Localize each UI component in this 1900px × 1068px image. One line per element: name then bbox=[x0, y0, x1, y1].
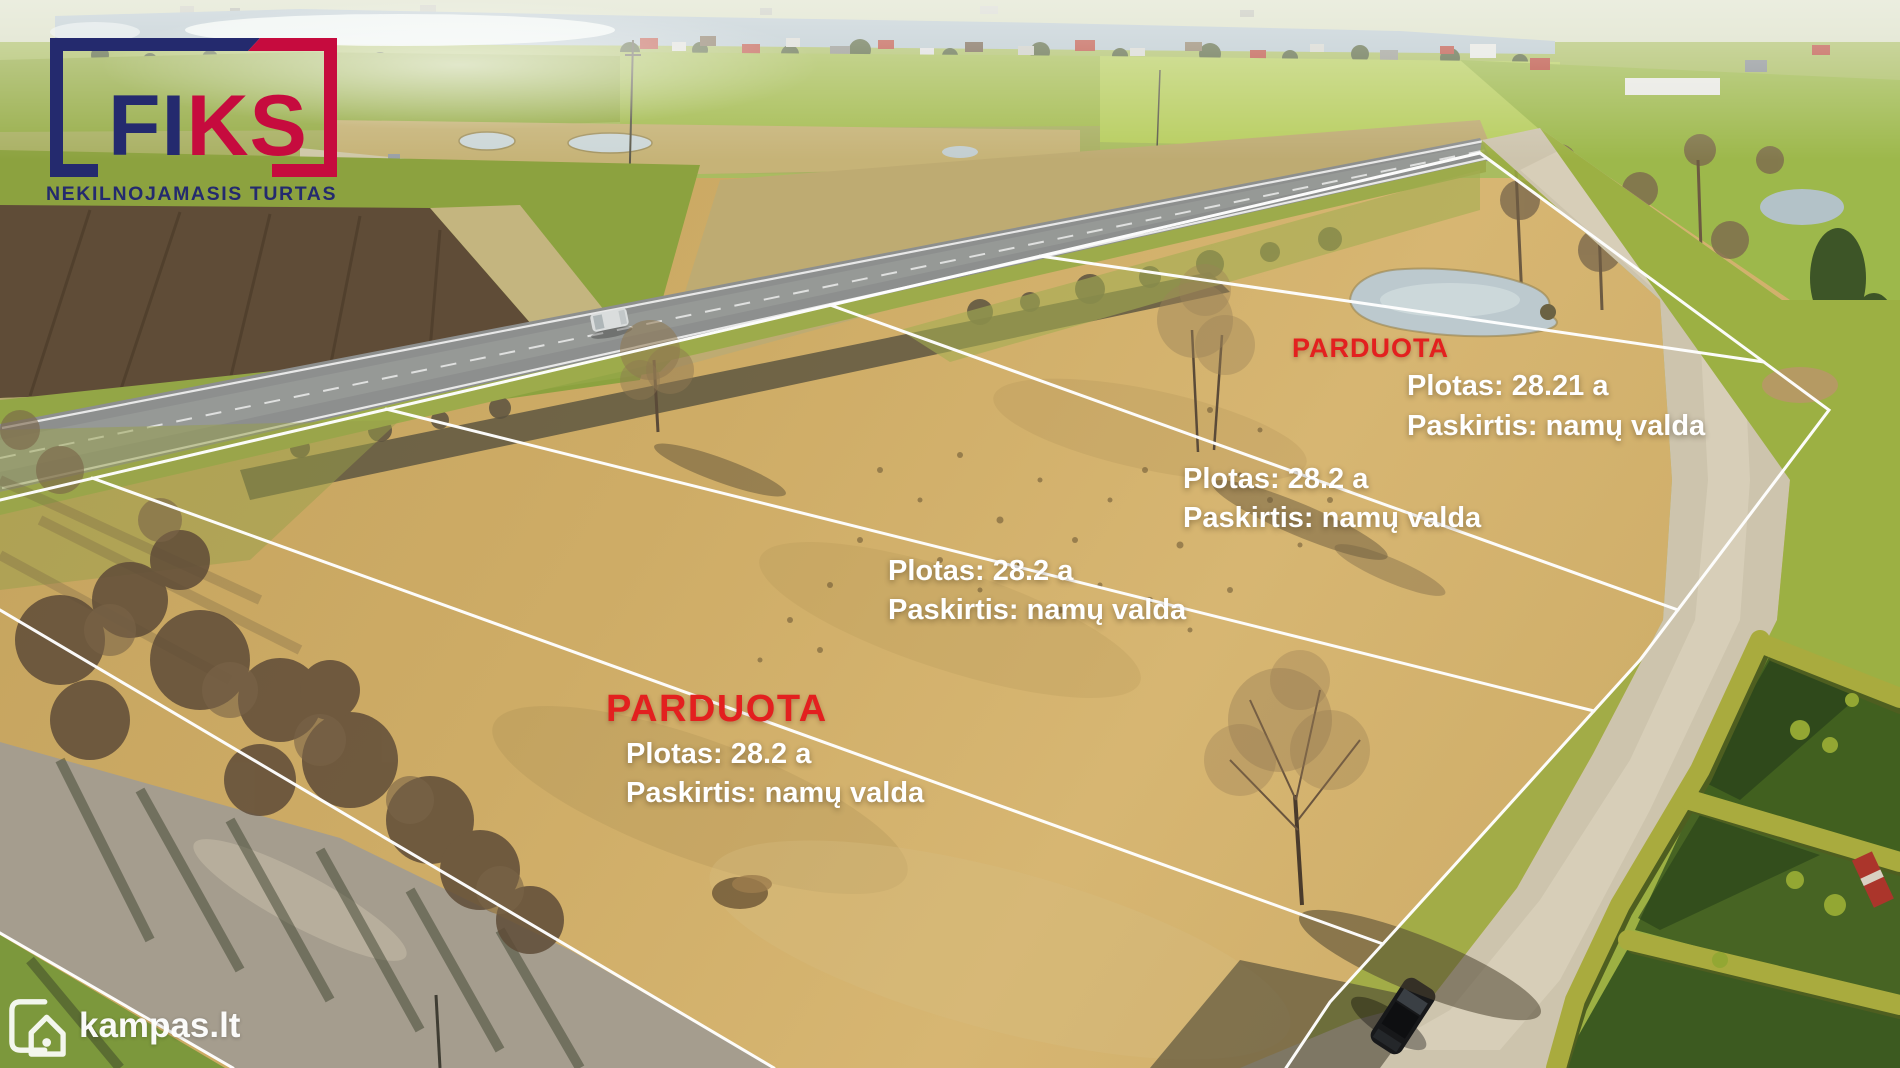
plot-area-text: Plotas: 28.2 a bbox=[626, 739, 924, 769]
plot-label-4: PARDUOTA Plotas: 28.2 a Paskirtis: namų … bbox=[606, 690, 924, 809]
brush-pile bbox=[1762, 367, 1838, 403]
plot-purpose-text: Paskirtis: namų valda bbox=[1183, 503, 1481, 533]
sold-badge: PARDUOTA bbox=[1292, 334, 1705, 362]
plot-label-3: Plotas: 28.2 a Paskirtis: namų valda bbox=[888, 547, 1186, 626]
kampas-watermark: kampas.lt bbox=[8, 994, 240, 1058]
kampas-house-icon bbox=[8, 994, 66, 1058]
plot-label-1: PARDUOTA Plotas: 28.21 a Paskirtis: namų… bbox=[1292, 334, 1705, 441]
plot-area-text: Plotas: 28.2 a bbox=[1183, 464, 1481, 494]
plot-purpose-text: Paskirtis: namų valda bbox=[1407, 411, 1705, 441]
pond-northeast bbox=[1760, 189, 1844, 225]
plot-purpose-text: Paskirtis: namų valda bbox=[888, 595, 1186, 625]
plot-label-2: Plotas: 28.2 a Paskirtis: namų valda bbox=[1183, 455, 1481, 534]
fiks-logo: FIKS bbox=[38, 28, 358, 183]
logo-tagline: NEKILNOJAMASIS TURTAS bbox=[46, 183, 337, 206]
sold-badge: PARDUOTA bbox=[606, 690, 924, 730]
fiks-logo-bracket: FIKS bbox=[38, 28, 358, 183]
plot-purpose-text: Paskirtis: namų valda bbox=[626, 778, 924, 808]
plot-area-text: Plotas: 28.2 a bbox=[888, 556, 1186, 586]
plot-area-text: Plotas: 28.21 a bbox=[1407, 371, 1705, 401]
kampas-watermark-text: kampas.lt bbox=[79, 1006, 240, 1046]
aerial-photo-listing: FIKS NEKILNOJAMASIS TURTAS PARDUOTA Plot… bbox=[0, 0, 1900, 1068]
fiks-wordmark: FIKS bbox=[108, 78, 308, 174]
